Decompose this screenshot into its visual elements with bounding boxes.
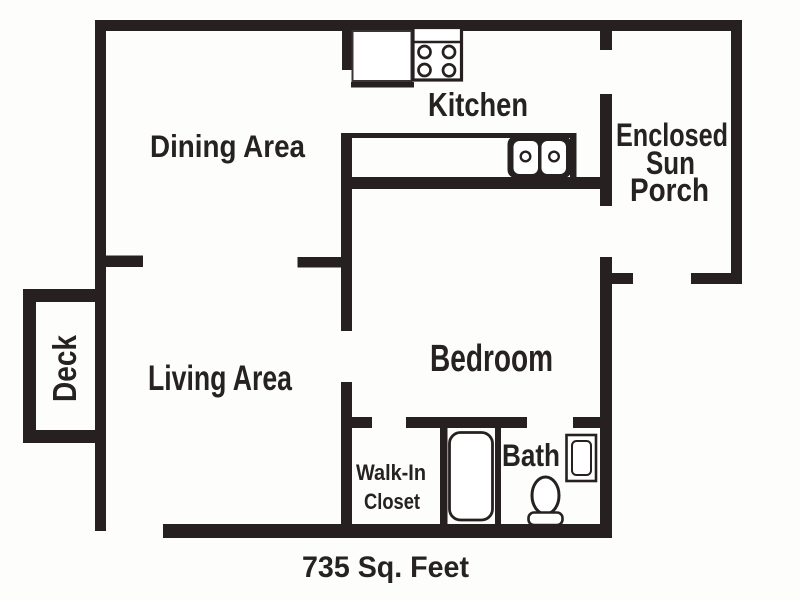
- svg-text:Deck: Deck: [46, 334, 83, 402]
- svg-text:735 Sq. Feet: 735 Sq. Feet: [302, 551, 469, 584]
- svg-text:Bedroom: Bedroom: [430, 338, 553, 380]
- svg-text:Bath: Bath: [502, 437, 560, 473]
- svg-text:Closet: Closet: [364, 489, 421, 514]
- svg-text:Kitchen: Kitchen: [428, 86, 528, 123]
- svg-text:Living Area: Living Area: [148, 359, 292, 398]
- svg-text:Porch: Porch: [630, 172, 709, 208]
- svg-text:Dining Area: Dining Area: [150, 128, 305, 164]
- svg-text:Walk-In: Walk-In: [356, 460, 426, 485]
